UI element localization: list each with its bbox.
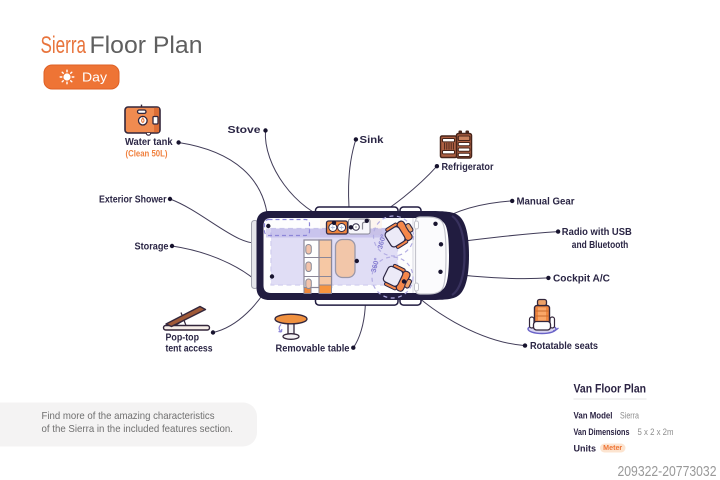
svg-text:tent access: tent access [166, 344, 213, 355]
svg-text:Cockpit A/C: Cockpit A/C [553, 274, 610, 285]
svg-text:(Clean 50L): (Clean 50L) [126, 149, 168, 160]
svg-text:Van Dimensions: Van Dimensions [574, 427, 630, 437]
svg-text:Water tank: Water tank [125, 137, 173, 148]
svg-text:Radio with USB: Radio with USB [562, 227, 632, 238]
svg-text:Manual Gear: Manual Gear [517, 197, 575, 208]
svg-text:Storage: Storage [135, 242, 169, 253]
svg-text:of the Sierra in the included: of the Sierra in the included features s… [42, 424, 234, 435]
svg-text:Refrigerator: Refrigerator [442, 162, 494, 173]
svg-text:Exterior Shower: Exterior Shower [99, 195, 167, 206]
svg-text:Van Model: Van Model [574, 411, 613, 421]
svg-text:Sink: Sink [360, 135, 384, 146]
svg-text:Pop-top: Pop-top [166, 333, 200, 344]
svg-text:Van Floor Plan: Van Floor Plan [574, 382, 647, 396]
svg-text:and Bluetooth: and Bluetooth [572, 240, 629, 251]
svg-text:Sierra: Sierra [620, 411, 639, 421]
svg-text:Units: Units [574, 443, 597, 453]
svg-text:Meter: Meter [603, 445, 622, 452]
svg-text:5 x 2 x 2m: 5 x 2 x 2m [638, 427, 674, 437]
svg-text:Find more of the amazing chara: Find more of the amazing characteristics [42, 411, 215, 422]
svg-text:Day: Day [82, 71, 108, 85]
svg-text:Rotatable seats: Rotatable seats [530, 341, 598, 352]
svg-text:Floor Plan: Floor Plan [90, 32, 203, 59]
svg-text:209322-20773032: 209322-20773032 [618, 463, 717, 480]
svg-text:Removable table: Removable table [276, 343, 350, 354]
svg-text:Sierra: Sierra [41, 32, 87, 59]
svg-text:Stove: Stove [228, 125, 262, 136]
